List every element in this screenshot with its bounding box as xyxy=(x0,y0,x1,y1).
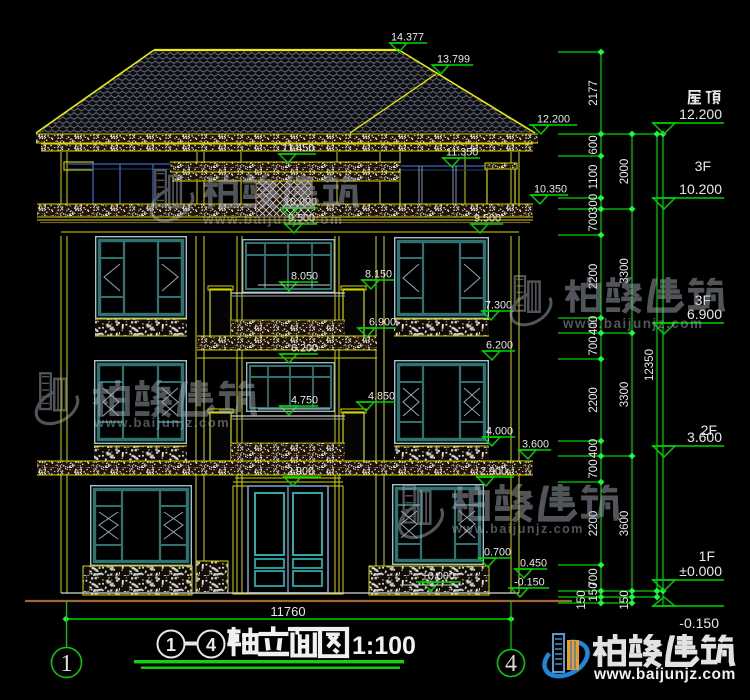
svg-text:150: 150 xyxy=(576,590,588,609)
svg-text:www.baijunjz.com: www.baijunjz.com xyxy=(451,522,584,536)
svg-text:300: 300 xyxy=(588,194,600,213)
svg-text:4.850: 4.850 xyxy=(368,391,395,403)
svg-text:150: 150 xyxy=(588,582,600,601)
svg-text:-0.150: -0.150 xyxy=(514,577,545,589)
svg-text:3600: 3600 xyxy=(619,511,631,537)
svg-text:14.377: 14.377 xyxy=(391,32,424,44)
svg-text:700: 700 xyxy=(588,336,600,355)
svg-text:www.baijunjz.com: www.baijunjz.com xyxy=(202,212,344,227)
svg-text:3300: 3300 xyxy=(619,382,631,408)
svg-text:±0.000: ±0.000 xyxy=(422,571,455,583)
svg-text:11.450: 11.450 xyxy=(282,143,314,155)
svg-text:2.900: 2.900 xyxy=(480,466,507,478)
svg-text:-0.150: -0.150 xyxy=(679,615,719,631)
svg-text:9.500: 9.500 xyxy=(474,213,501,225)
svg-text:3.600: 3.600 xyxy=(522,439,549,451)
svg-text:150: 150 xyxy=(619,590,631,609)
svg-text:3F: 3F xyxy=(695,158,711,174)
svg-text:11760: 11760 xyxy=(270,604,305,619)
svg-text:2000: 2000 xyxy=(619,159,631,185)
svg-text:4: 4 xyxy=(505,651,517,677)
svg-text:6.200: 6.200 xyxy=(486,340,513,352)
svg-text:1:100: 1:100 xyxy=(352,632,416,660)
svg-text:0.450: 0.450 xyxy=(520,558,547,570)
svg-text:4.000: 4.000 xyxy=(486,426,513,438)
svg-text:700: 700 xyxy=(588,212,600,231)
svg-text:10.350: 10.350 xyxy=(534,184,567,196)
svg-text:1100: 1100 xyxy=(588,165,600,190)
svg-text:12.200: 12.200 xyxy=(679,106,722,122)
svg-text:12350: 12350 xyxy=(644,349,656,381)
svg-text:11.350: 11.350 xyxy=(446,147,478,159)
svg-text:6.900: 6.900 xyxy=(369,317,396,329)
svg-text:6.200: 6.200 xyxy=(291,343,318,355)
svg-text:2.900: 2.900 xyxy=(287,466,314,478)
svg-text:4.750: 4.750 xyxy=(291,395,318,407)
svg-text:1F: 1F xyxy=(699,548,715,564)
svg-text:0.700: 0.700 xyxy=(484,547,511,559)
svg-text:400: 400 xyxy=(588,439,600,458)
svg-text:www.baijunjz.com: www.baijunjz.com xyxy=(93,415,230,430)
svg-text:700: 700 xyxy=(588,459,600,478)
svg-text:2177: 2177 xyxy=(588,80,600,106)
svg-text:1: 1 xyxy=(166,635,176,655)
svg-text:www.baijunjz.com: www.baijunjz.com xyxy=(562,316,704,331)
svg-text:4: 4 xyxy=(206,635,216,655)
svg-text:13.799: 13.799 xyxy=(437,54,470,66)
svg-text:www.baijunjz.com: www.baijunjz.com xyxy=(593,666,736,683)
svg-text:±0.000: ±0.000 xyxy=(679,563,722,579)
svg-text:2F: 2F xyxy=(701,422,717,438)
svg-text:12.200: 12.200 xyxy=(537,114,570,126)
svg-text:8.150: 8.150 xyxy=(365,269,392,281)
svg-text:600: 600 xyxy=(588,135,600,154)
svg-text:7.300: 7.300 xyxy=(485,300,512,312)
svg-text:8.050: 8.050 xyxy=(291,271,318,283)
svg-text:1: 1 xyxy=(61,651,73,677)
svg-text:10.200: 10.200 xyxy=(679,181,722,197)
svg-text:2200: 2200 xyxy=(588,387,600,413)
